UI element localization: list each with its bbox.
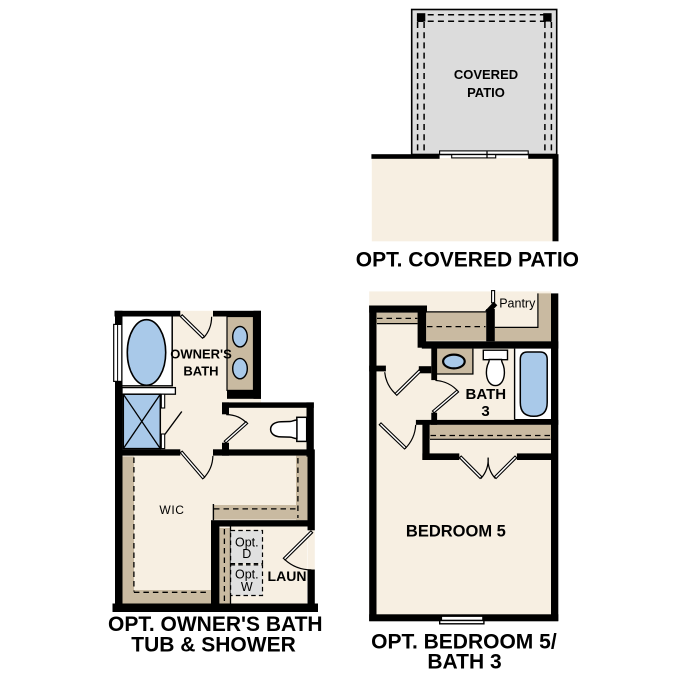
- svg-text:OWNER'S: OWNER'S: [170, 347, 232, 362]
- svg-text:BATH: BATH: [183, 364, 218, 379]
- svg-text:3: 3: [481, 403, 489, 420]
- svg-text:TUB & SHOWER: TUB & SHOWER: [131, 634, 296, 657]
- svg-text:PATIO: PATIO: [467, 85, 505, 100]
- svg-text:BEDROOM 5: BEDROOM 5: [406, 523, 506, 541]
- svg-text:BATH 3: BATH 3: [427, 650, 501, 673]
- svg-text:D: D: [242, 547, 251, 561]
- svg-text:Pantry: Pantry: [499, 297, 536, 311]
- svg-text:WIC: WIC: [159, 503, 184, 517]
- svg-text:BATH: BATH: [466, 386, 507, 403]
- svg-text:W: W: [241, 580, 253, 594]
- svg-text:LAUN: LAUN: [268, 568, 307, 584]
- svg-text:COVERED: COVERED: [454, 67, 518, 82]
- svg-text:OPT. COVERED PATIO: OPT. COVERED PATIO: [356, 249, 579, 272]
